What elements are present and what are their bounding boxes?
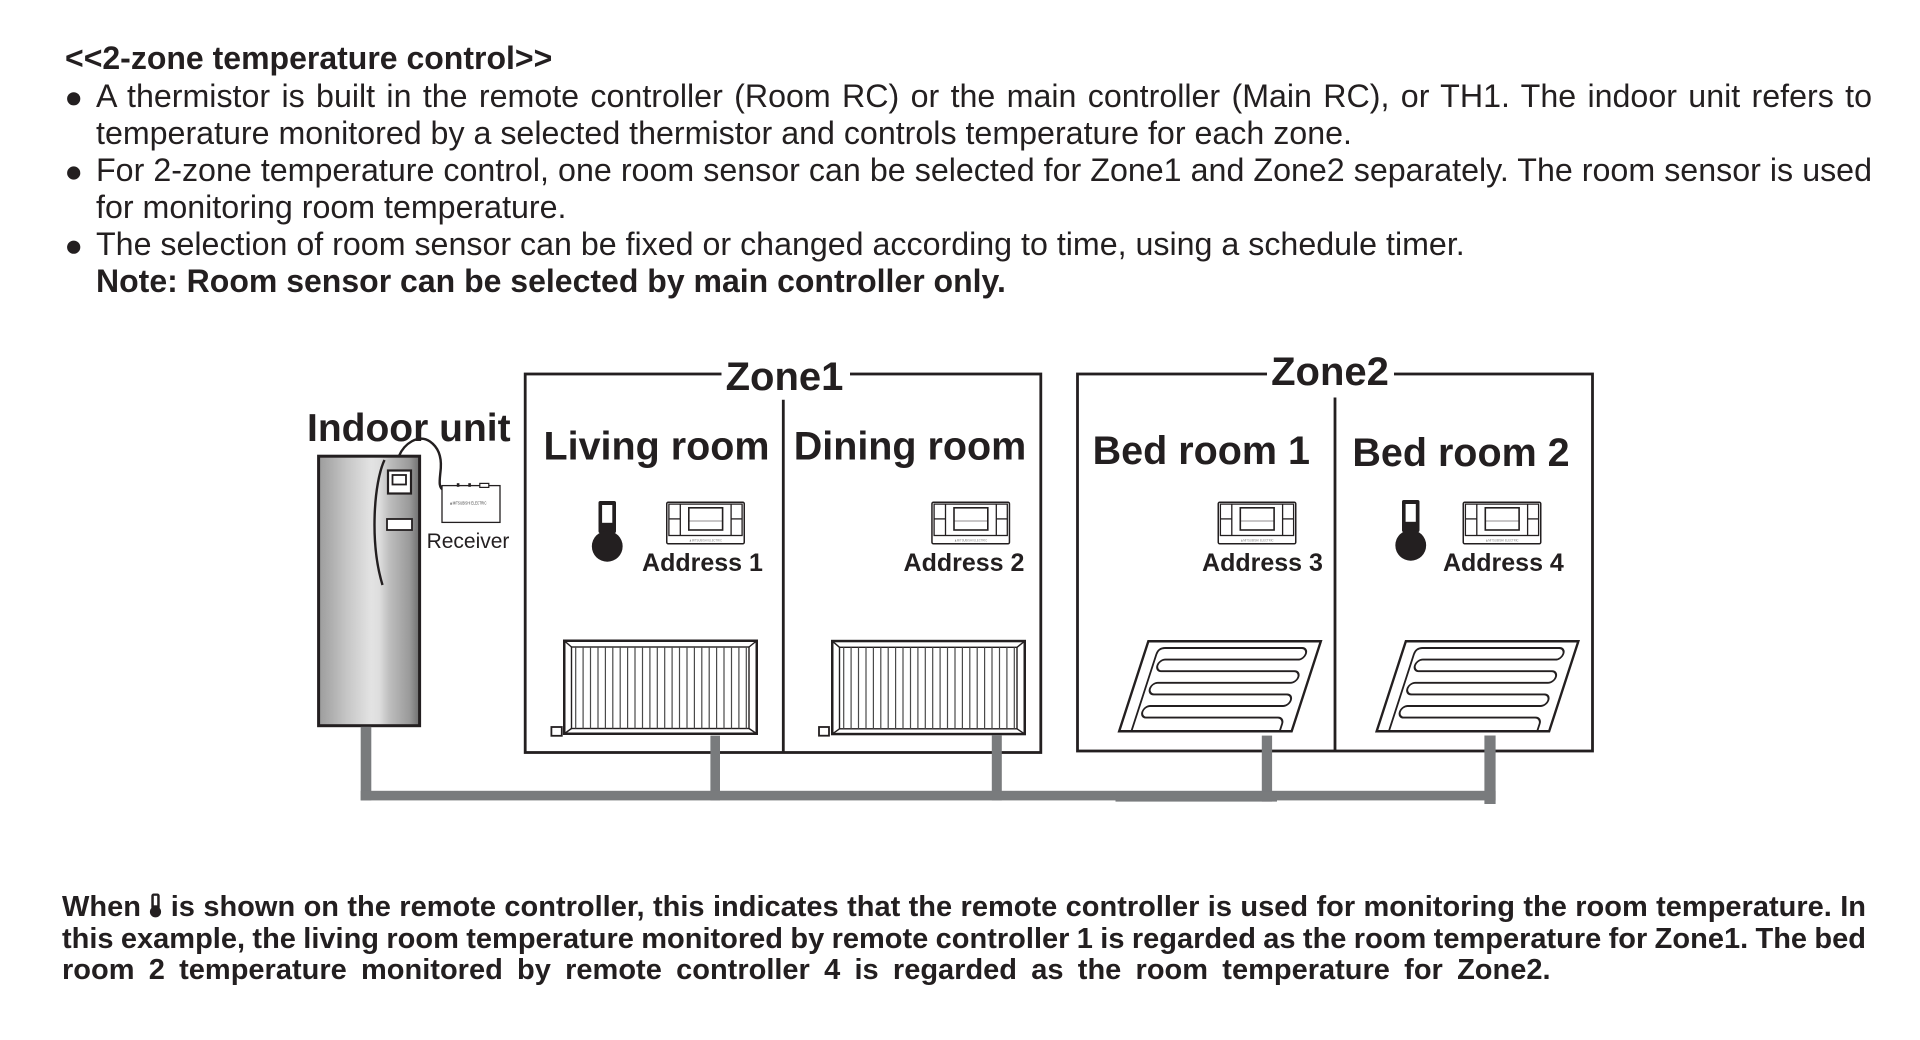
svg-text:▲MITSUBISHI ELECTRIC: ▲MITSUBISHI ELECTRIC — [450, 501, 487, 506]
svg-text:Receiver: Receiver — [427, 530, 510, 553]
svg-text:Address 4: Address 4 — [1443, 549, 1564, 577]
svg-text:Address 2: Address 2 — [904, 549, 1025, 577]
svg-text:Bed room 2: Bed room 2 — [1352, 431, 1569, 475]
svg-text:Dining room: Dining room — [794, 424, 1027, 468]
svg-text:Zone1: Zone1 — [726, 355, 844, 399]
svg-text:Living room: Living room — [543, 424, 769, 468]
svg-text:Zone2: Zone2 — [1271, 350, 1389, 394]
svg-text:Address 3: Address 3 — [1202, 549, 1323, 577]
svg-text:Bed room 1: Bed room 1 — [1093, 429, 1310, 473]
svg-text:Address 1: Address 1 — [642, 549, 763, 577]
